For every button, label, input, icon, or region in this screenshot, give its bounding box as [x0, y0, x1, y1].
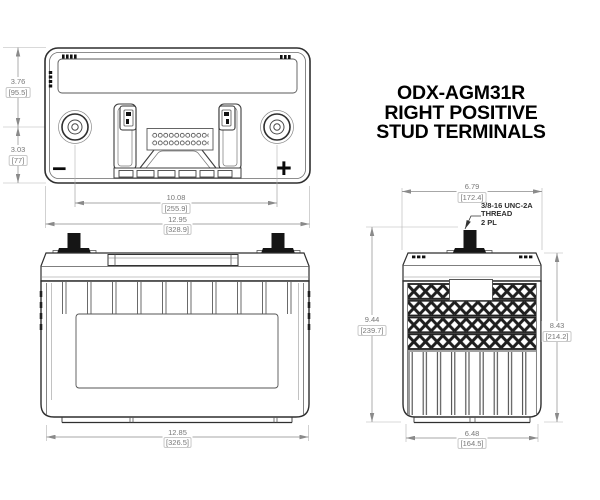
front-label-area — [76, 314, 278, 388]
dim-top-height-upper: 3.76 [95.5] — [5, 77, 32, 98]
dim-top-height-lower: 3.03 [77] — [8, 145, 29, 166]
dim-side-top-width: 6.79 [172.4] — [457, 182, 488, 203]
handle-strip — [108, 255, 238, 266]
dim-terminal-spacing: 10.08 [255.9] — [161, 193, 192, 214]
side-label-area — [450, 280, 493, 301]
drawing-canvas: ODX-AGM31R RIGHT POSITIVE STUD TERMINALS… — [0, 0, 600, 500]
dim-side-case-height: 8.43 [214.2] — [542, 321, 573, 342]
side-terminal — [447, 230, 492, 254]
top-view — [3, 48, 310, 229]
drawing-title: ODX-AGM31R RIGHT POSITIVE STUD TERMINALS — [345, 84, 577, 143]
dim-side-overall-height: 9.44 [239.7] — [357, 315, 388, 336]
title-line3: STUD TERMINALS — [345, 123, 577, 143]
thread-leader-line — [465, 216, 481, 229]
front-ribs — [60, 282, 295, 314]
front-terminals — [53, 233, 300, 254]
side-ribs — [408, 352, 536, 415]
vent-label-strip — [147, 129, 213, 151]
negative-terminal-symbol: − — [52, 157, 67, 182]
dim-side-bottom-width: 6.48 [164.5] — [457, 429, 488, 450]
front-view — [40, 233, 311, 423]
thread-note-line3: 2 PL — [481, 219, 533, 227]
positive-terminal-symbol: + — [276, 155, 292, 182]
dim-front-overall-width: 12.85 [326.5] — [162, 428, 193, 449]
title-model: ODX-AGM31R — [345, 84, 577, 104]
dim-top-overall-width: 12.95 [328.9] — [162, 215, 193, 236]
thread-note: 3/8-16 UNC-2A THREAD 2 PL — [481, 202, 533, 227]
battery-technical-drawing — [0, 0, 600, 500]
side-view — [403, 230, 541, 423]
